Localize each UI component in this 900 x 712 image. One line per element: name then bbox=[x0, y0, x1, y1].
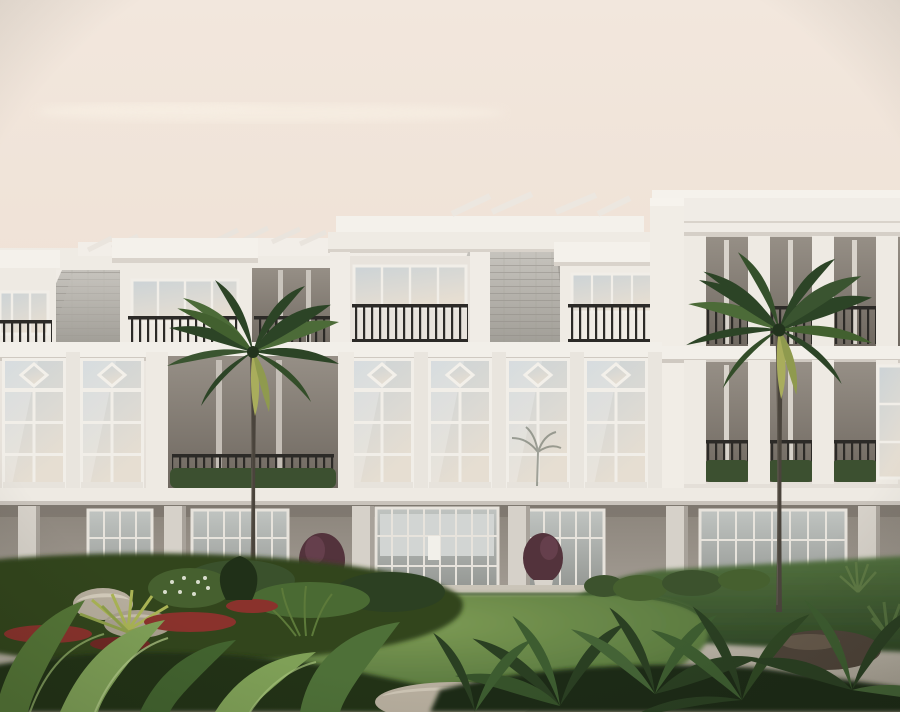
condo-rendering bbox=[0, 0, 900, 712]
vignette-overlay bbox=[0, 0, 900, 712]
rendering-image bbox=[0, 0, 900, 712]
